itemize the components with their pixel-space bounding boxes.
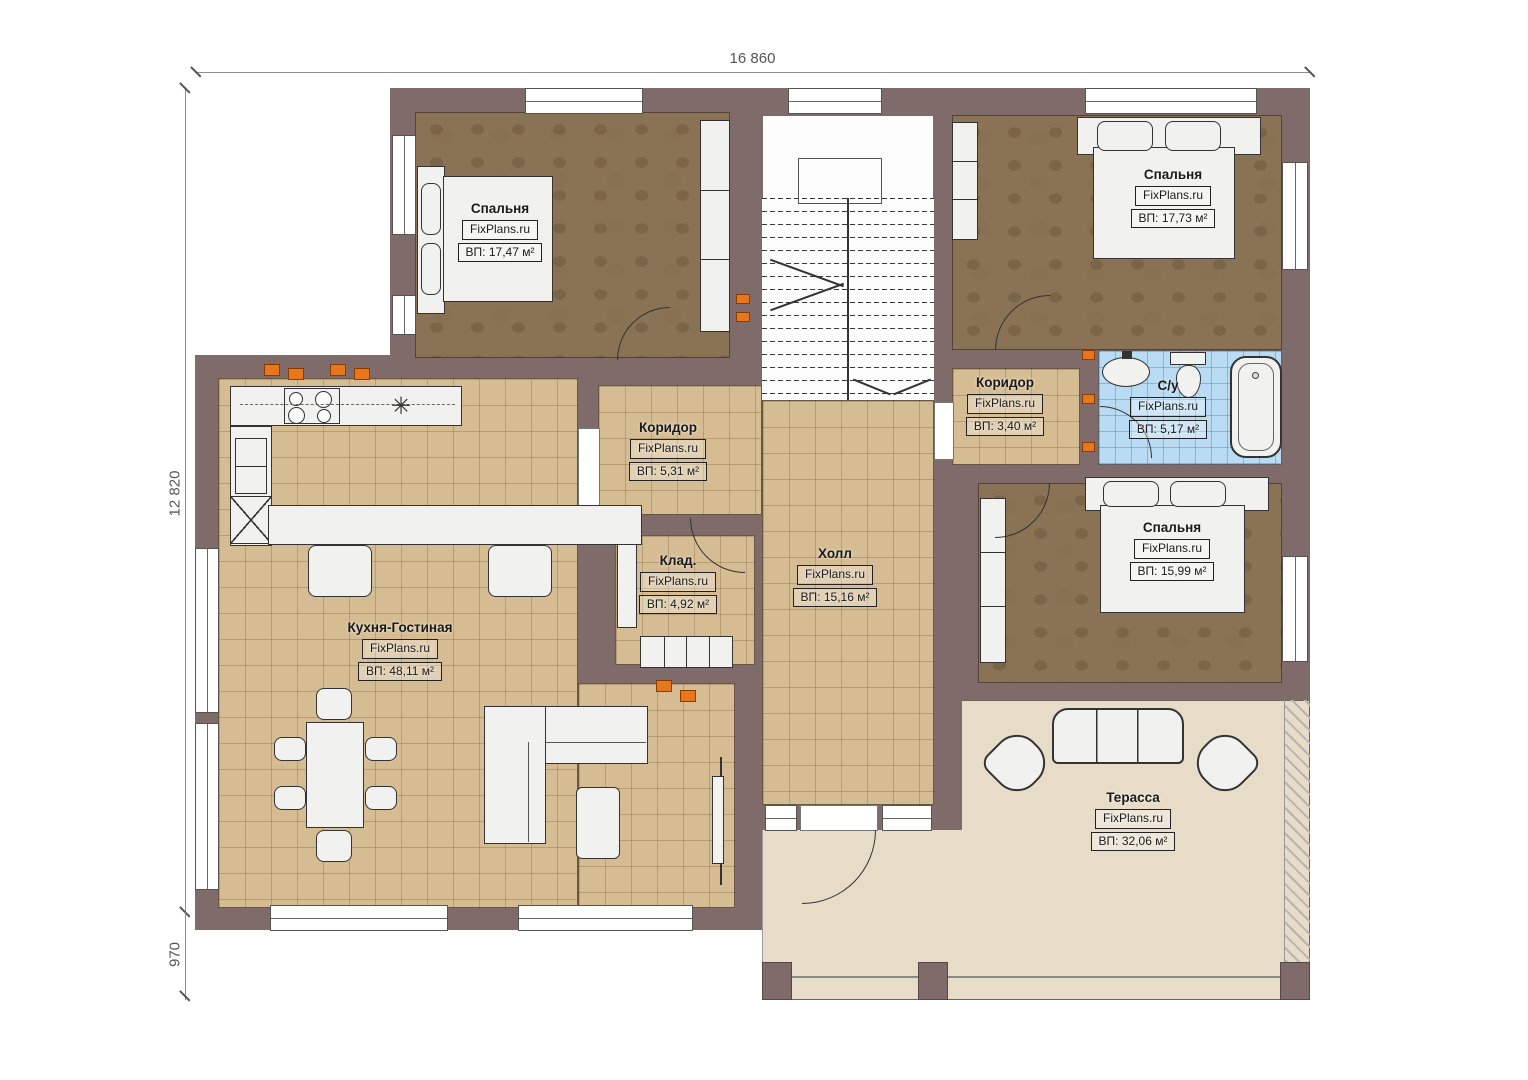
room-area: ВП: 48,11 м² xyxy=(358,662,442,682)
dimension-line-bottom-left xyxy=(185,912,186,1000)
pillow xyxy=(1165,121,1221,151)
wardrobe xyxy=(952,122,978,240)
chair xyxy=(316,688,352,720)
sink-tap xyxy=(1122,351,1132,359)
sofa-seat-line xyxy=(528,742,529,842)
chair xyxy=(365,737,397,761)
pillow xyxy=(1097,121,1153,151)
corner-sofa xyxy=(484,706,546,844)
staircase-divider xyxy=(847,198,849,400)
room-label-bedroom-1: Спальня FixPlans.ru ВП: 17,47 м² xyxy=(425,201,575,262)
room-name: Терасса xyxy=(1106,790,1160,806)
socket-marker xyxy=(736,312,750,322)
room-area: ВП: 3,40 м² xyxy=(966,417,1044,437)
sofa-seat-line xyxy=(546,742,646,743)
window xyxy=(270,905,448,931)
watermark: FixPlans.ru xyxy=(1135,186,1211,206)
watermark: FixPlans.ru xyxy=(362,639,438,659)
storage-shelves xyxy=(640,636,733,668)
chair xyxy=(274,737,306,761)
room-label-bedroom-3: Спальня FixPlans.ru ВП: 15,99 м² xyxy=(1097,520,1247,581)
room-area: ВП: 15,99 м² xyxy=(1130,562,1215,582)
socket-marker xyxy=(264,364,280,376)
room-area: ВП: 17,73 м² xyxy=(1131,209,1216,229)
room-name: Кухня-Гостиная xyxy=(348,620,453,636)
coffee-table xyxy=(576,787,620,859)
room-name: С/у xyxy=(1157,378,1178,394)
window xyxy=(518,905,693,931)
socket-marker xyxy=(1082,350,1095,360)
room-label-hall: Холл FixPlans.ru ВП: 15,16 м² xyxy=(760,546,910,607)
kitchen-counter xyxy=(230,386,462,426)
socket-marker xyxy=(1082,442,1095,452)
room-area: ВП: 17,47 м² xyxy=(458,243,543,263)
terrace-post xyxy=(918,962,948,1000)
dimension-line-left xyxy=(185,88,186,912)
socket-marker xyxy=(354,368,370,380)
wall-hall-right xyxy=(934,700,962,805)
watermark: FixPlans.ru xyxy=(630,439,706,459)
socket-marker xyxy=(330,364,346,376)
dimension-left: 12 820 xyxy=(167,439,184,549)
stove xyxy=(284,388,340,424)
room-label-storage: Клад. FixPlans.ru ВП: 4,92 м² xyxy=(603,553,753,614)
room-area: ВП: 5,31 м² xyxy=(629,462,707,482)
terrace-edge-line xyxy=(762,830,763,976)
window xyxy=(1282,556,1308,662)
window xyxy=(1282,162,1308,270)
room-name: Спальня xyxy=(1143,520,1201,536)
chair xyxy=(316,830,352,862)
room-name: Коридор xyxy=(976,375,1034,391)
room-area: ВП: 15,16 м² xyxy=(793,588,878,608)
staircase-rail xyxy=(798,158,882,204)
bathtub-drain xyxy=(1252,372,1259,379)
watermark: FixPlans.ru xyxy=(967,394,1043,414)
chair xyxy=(365,786,397,810)
sink-symbol-icon: ✳ xyxy=(386,392,416,422)
bar-stool xyxy=(308,545,372,597)
watermark: FixPlans.ru xyxy=(1095,809,1171,829)
pillow xyxy=(1103,481,1159,507)
room-label-kitchen-living: Кухня-Гостиная FixPlans.ru ВП: 48,11 м² xyxy=(325,620,475,681)
socket-marker xyxy=(680,690,696,702)
wardrobe xyxy=(700,120,730,332)
toilet-tank xyxy=(1170,352,1206,365)
dining-table xyxy=(306,722,364,828)
terrace-sofa xyxy=(1052,708,1184,764)
pillow xyxy=(1170,481,1226,507)
cabinet-doors xyxy=(235,438,267,494)
window xyxy=(195,548,219,713)
watermark: FixPlans.ru xyxy=(462,220,538,240)
room-area: ВП: 5,17 м² xyxy=(1129,420,1207,440)
window xyxy=(765,805,797,831)
counter-dashed-line xyxy=(240,404,455,405)
terrace-rail xyxy=(762,976,1310,978)
wall-niche xyxy=(392,135,416,235)
watermark: FixPlans.ru xyxy=(640,572,716,592)
kitchen-island xyxy=(268,505,642,545)
room-area: ВП: 32,06 м² xyxy=(1091,832,1176,852)
terrace-door-opening xyxy=(800,805,878,831)
terrace-post xyxy=(1280,962,1310,1000)
socket-marker xyxy=(656,680,672,692)
terrace-post xyxy=(762,962,792,1000)
room-name: Спальня xyxy=(1144,167,1202,183)
room-label-bathroom: С/у FixPlans.ru ВП: 5,17 м² xyxy=(1093,378,1243,439)
socket-marker xyxy=(288,368,304,380)
watermark: FixPlans.ru xyxy=(1130,397,1206,417)
wall-niche xyxy=(392,295,416,335)
room-name: Клад. xyxy=(660,553,697,569)
bar-stool xyxy=(488,545,552,597)
room-label-corridor-center: Коридор FixPlans.ru ВП: 5,31 м² xyxy=(593,420,743,481)
room-label-corridor-right: Коридор FixPlans.ru ВП: 3,40 м² xyxy=(930,375,1080,436)
room-label-terrace: Терасса FixPlans.ru ВП: 32,06 м² xyxy=(1058,790,1208,851)
room-name: Коридор xyxy=(639,420,697,436)
room-name: Спальня xyxy=(471,201,529,217)
tv xyxy=(712,776,724,864)
room-name: Холл xyxy=(818,546,852,562)
dimension-bottom-left: 970 xyxy=(167,920,184,990)
window xyxy=(525,88,643,114)
chair xyxy=(274,786,306,810)
dimension-top: 16 860 xyxy=(195,50,1310,67)
room-label-bedroom-2: Спальня FixPlans.ru ВП: 17,73 м² xyxy=(1098,167,1248,228)
fridge xyxy=(230,496,272,544)
window xyxy=(882,805,932,831)
window xyxy=(195,723,219,890)
terrace-edge-hatch xyxy=(1284,700,1310,1000)
room-area: ВП: 4,92 м² xyxy=(639,595,717,615)
window xyxy=(1085,88,1257,114)
socket-marker xyxy=(736,294,750,304)
watermark: FixPlans.ru xyxy=(797,565,873,585)
floor-plan: 16 860 12 820 970 xyxy=(0,0,1528,1080)
window xyxy=(788,88,882,114)
dimension-line-top xyxy=(195,72,1310,73)
watermark: FixPlans.ru xyxy=(1134,539,1210,559)
